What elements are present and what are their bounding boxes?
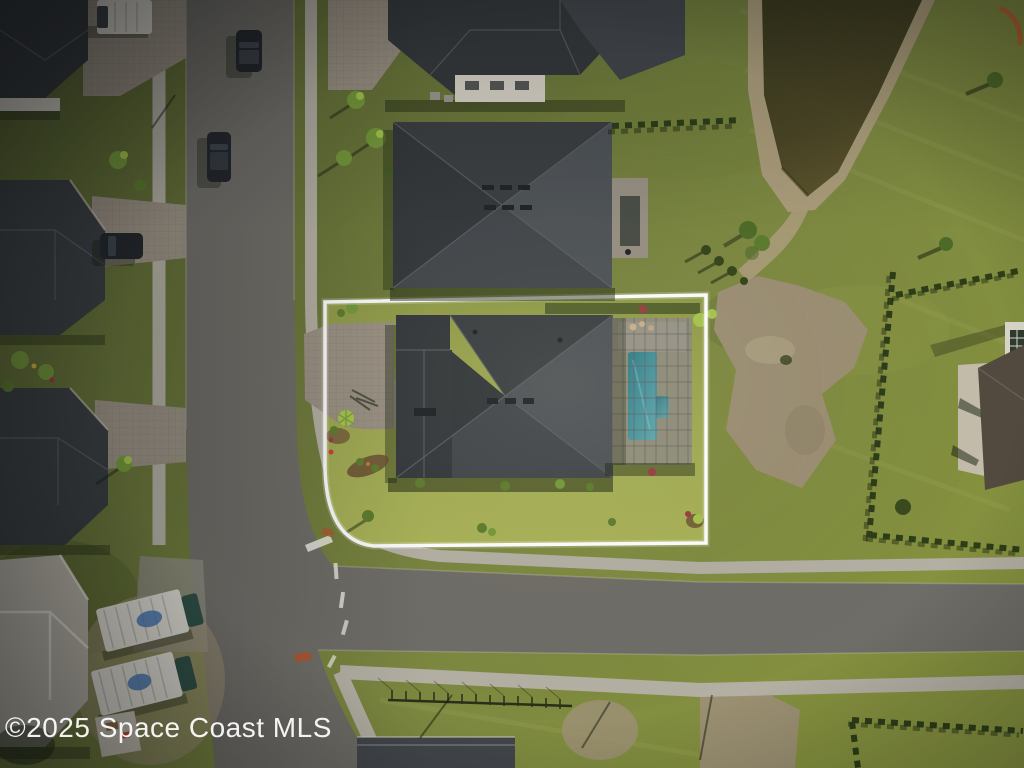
mls-watermark: ©2025 Space Coast MLS (5, 712, 332, 744)
photo-vignette (0, 0, 1024, 768)
aerial-scene (0, 0, 1024, 768)
aerial-photo: ©2025 Space Coast MLS (0, 0, 1024, 768)
